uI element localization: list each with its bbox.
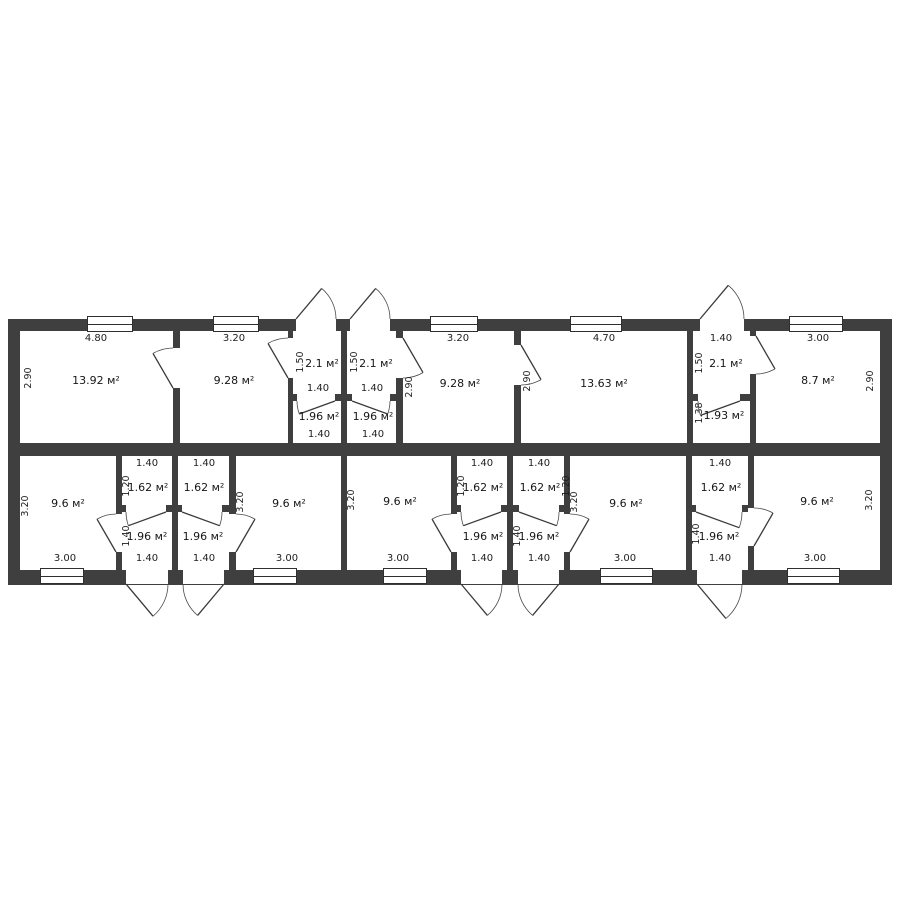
dim-label: 1.40 bbox=[691, 333, 751, 344]
area-label: 9.6 м² bbox=[370, 495, 430, 508]
dim-label: 1.40 bbox=[117, 458, 177, 469]
dim-label: 3.00 bbox=[788, 333, 848, 344]
area-label: 1.62 м² bbox=[691, 481, 751, 494]
dim-label-vertical: 1.50 bbox=[295, 349, 307, 375]
area-label: 1.96 м² bbox=[173, 530, 233, 543]
window bbox=[40, 568, 84, 584]
window bbox=[87, 316, 133, 332]
dim-label: 1.40 bbox=[690, 553, 750, 564]
dim-label: 3.20 bbox=[204, 333, 264, 344]
dim-label: 1.40 bbox=[452, 458, 512, 469]
floorplan-page: etagi bbox=[0, 0, 900, 900]
dim-label: 3.00 bbox=[257, 553, 317, 564]
window bbox=[787, 568, 840, 584]
door-gap bbox=[182, 505, 222, 512]
dim-label-vertical: 3.20 bbox=[864, 487, 876, 513]
dim-label: 3.00 bbox=[785, 553, 845, 564]
dim-label-vertical: 1.50 bbox=[694, 350, 706, 376]
area-label: 9.28 м² bbox=[430, 377, 490, 390]
door-gap bbox=[697, 570, 742, 584]
dim-label-vertical: 2.90 bbox=[404, 374, 416, 400]
dim-label: 3.00 bbox=[368, 553, 428, 564]
dim-label-vertical: 1.20 bbox=[456, 473, 468, 499]
area-label: 9.28 м² bbox=[204, 374, 264, 387]
dim-label: 1.40 bbox=[509, 458, 569, 469]
area-label: 8.7 м² bbox=[788, 374, 848, 387]
area-label: 9.6 м² bbox=[596, 497, 656, 510]
window bbox=[570, 316, 622, 332]
area-label: 1.96 м² bbox=[289, 410, 349, 423]
dim-label-vertical: 2.90 bbox=[522, 368, 534, 394]
dim-label: 1.40 bbox=[289, 429, 349, 440]
dim-label: 1.40 bbox=[452, 553, 512, 564]
door-gap bbox=[461, 570, 502, 584]
dim-label: 4.70 bbox=[574, 333, 634, 344]
area-label: 9.6 м² bbox=[259, 497, 319, 510]
dim-label: 1.40 bbox=[288, 383, 348, 394]
dim-label: 1.40 bbox=[690, 458, 750, 469]
dim-label: 4.80 bbox=[66, 333, 126, 344]
room-living-9-28-left bbox=[180, 331, 288, 443]
area-label: 13.63 м² bbox=[574, 377, 634, 390]
dim-label-vertical: 3.20 bbox=[569, 489, 581, 515]
room-living-8-7 bbox=[756, 331, 880, 443]
door-gap bbox=[514, 345, 521, 385]
dim-label: 1.40 bbox=[509, 553, 569, 564]
window bbox=[253, 568, 297, 584]
dim-label: 1.40 bbox=[117, 553, 177, 564]
door-gap bbox=[696, 505, 742, 512]
window bbox=[430, 316, 478, 332]
dim-label-vertical: 1.50 bbox=[349, 349, 361, 375]
area-label: 13.92 м² bbox=[66, 374, 126, 387]
dim-label-vertical: 3.20 bbox=[20, 493, 32, 519]
door-gap bbox=[126, 505, 166, 512]
dim-label-vertical: 1.40 bbox=[512, 523, 524, 549]
door-gap bbox=[350, 319, 390, 331]
dim-label-vertical: 1.38 bbox=[694, 400, 706, 426]
window bbox=[213, 316, 259, 332]
dim-label-vertical: 1.40 bbox=[691, 521, 703, 547]
window bbox=[789, 316, 843, 332]
door-gap bbox=[518, 570, 559, 584]
window bbox=[383, 568, 427, 584]
door-gap bbox=[296, 319, 336, 331]
door-gap bbox=[173, 348, 180, 388]
area-label: 1.96 м² bbox=[453, 530, 513, 543]
dim-label: 1.40 bbox=[174, 553, 234, 564]
window bbox=[600, 568, 653, 584]
dim-label-vertical: 3.20 bbox=[235, 489, 247, 515]
dim-label-vertical: 3.20 bbox=[346, 487, 358, 513]
dim-label-vertical: 2.90 bbox=[865, 368, 877, 394]
area-label: 1.62 м² bbox=[174, 481, 234, 494]
area-label: 9.6 м² bbox=[787, 495, 847, 508]
dim-label: 1.40 bbox=[343, 429, 403, 440]
door-gap bbox=[519, 505, 559, 512]
door-gap bbox=[297, 394, 335, 401]
door-gap bbox=[352, 394, 390, 401]
dim-label: 3.20 bbox=[428, 333, 488, 344]
dim-label: 3.00 bbox=[595, 553, 655, 564]
dim-label-vertical: 2.90 bbox=[23, 365, 35, 391]
area-label: 9.6 м² bbox=[38, 497, 98, 510]
dim-label-vertical: 1.20 bbox=[121, 473, 133, 499]
door-gap bbox=[126, 570, 168, 584]
area-label: 1.96 м² bbox=[343, 410, 403, 423]
dim-label: 1.40 bbox=[174, 458, 234, 469]
dim-label: 3.00 bbox=[35, 553, 95, 564]
door-gap bbox=[461, 505, 501, 512]
dim-label-vertical: 1.40 bbox=[121, 523, 133, 549]
door-gap bbox=[183, 570, 224, 584]
room-living-13-92 bbox=[20, 331, 173, 443]
door-gap bbox=[700, 319, 744, 331]
dim-label: 1.40 bbox=[342, 383, 402, 394]
